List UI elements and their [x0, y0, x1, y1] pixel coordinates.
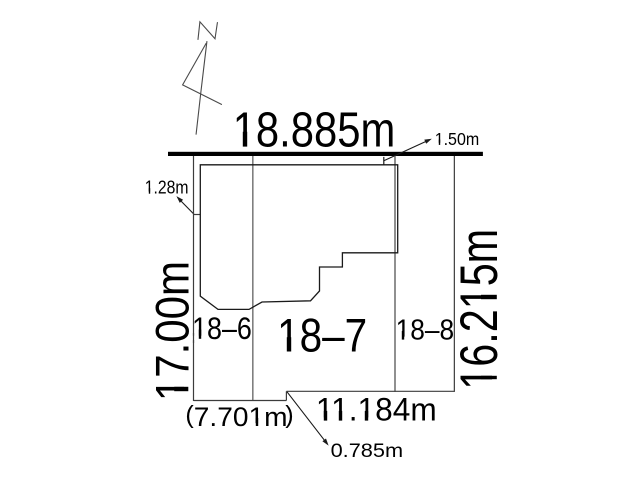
svg-text:17.00m: 17.00m [146, 261, 198, 401]
svg-text:18.885m: 18.885m [233, 103, 396, 158]
svg-text:7.701m: 7.701m [194, 402, 288, 432]
svg-text:0.785m: 0.785m [331, 440, 404, 462]
svg-text:18–7: 18–7 [277, 310, 367, 363]
svg-text:16.215m: 16.215m [450, 229, 509, 390]
svg-text:18–6: 18–6 [192, 311, 252, 346]
svg-text:11.184m: 11.184m [316, 392, 437, 428]
svg-text:18–8: 18–8 [396, 315, 455, 347]
svg-text:): ) [285, 401, 293, 429]
